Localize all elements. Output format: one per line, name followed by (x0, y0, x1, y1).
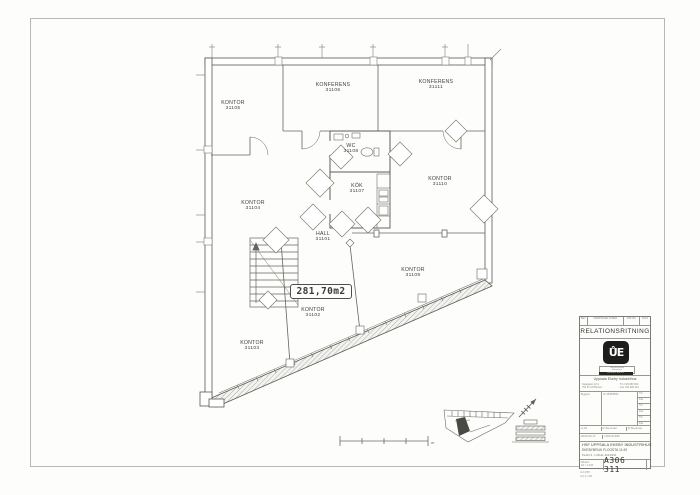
scale-bar: m (340, 436, 435, 446)
date-cell: 2003-05-17 (580, 435, 603, 439)
phone-line: Fax 018-480 601 (620, 386, 639, 389)
sign-cell: R Stenman (627, 427, 650, 431)
number-row: SKALA A3 = 1:100 A306 311 (580, 459, 650, 471)
empty-cell (647, 460, 650, 471)
sign-cell: A-01 (580, 427, 602, 431)
scale-cell: SKALA A3 = 1:100 (580, 460, 604, 471)
handler-cell: I FROLUND (603, 435, 650, 439)
company-name: Uppsala Ekeby Industrihus (580, 377, 650, 381)
rev-col-date: DATUM (624, 317, 640, 325)
north-arrow-icon (519, 399, 536, 417)
wc-kitchen-core (330, 131, 390, 228)
diagonal-glazing (219, 269, 487, 393)
logo-zone: ŮE Uppsala Ekeby Industrihus EKEBYBRUK (580, 338, 650, 375)
scale-value: A3 = 1:100 (581, 464, 602, 467)
grid-mid-cell: Nr 4538/5566 (602, 392, 638, 425)
area-annotation: 281,70m2 (290, 284, 352, 299)
company-block: Uppsala Ekeby Industrihus Salagatan 18 A… (580, 375, 650, 391)
sign-cell: R Stenman (602, 427, 627, 431)
address-line: 753 30 UPPSALA (582, 386, 602, 389)
project-title: HSF UPPSALA EKEBY INDUSTRIHUS (582, 443, 648, 447)
date-row: 2003-05-17 I FROLUND (580, 433, 650, 441)
plot-stamp-line: A3-1:100 (580, 475, 592, 479)
signature-row: A-01 R Stenman R Stenman (580, 425, 650, 433)
grid-left-cell: Bygglov (580, 392, 602, 425)
reference-grid: Bygglov Nr 4538/5566 Tfn Fax Tfn Fax Tfn… (580, 391, 650, 425)
company-address: Salagatan 18 A 753 30 UPPSALA (582, 383, 602, 389)
company-logo-icon: ŮE (603, 341, 629, 364)
plot-stamp: A3-358 A3-1:100 (580, 471, 592, 479)
project-property: EKEBYBRUK FLOGSTA 11:49 (582, 448, 648, 452)
drawing-sheet: m (0, 0, 700, 495)
scale-bar-unit: m (431, 440, 435, 445)
revision-header-row: BET ÄNDRINGEN AVSER DATUM SIGN (580, 317, 650, 325)
rev-col-sign: SIGN (640, 317, 650, 325)
furniture-desks (259, 120, 498, 309)
rev-col-bet: BET (580, 317, 588, 325)
key-plan (444, 410, 514, 442)
drawing-number: A306 311 (604, 460, 647, 471)
interior-partitions (211, 65, 485, 364)
document-type-title: RELATIONSRITNING (580, 325, 650, 338)
company-phone: Tfn 018-480 600 Fax 018-480 601 (620, 383, 639, 389)
grid-ticks (196, 44, 501, 292)
rev-col-change: ÄNDRINGEN AVSER (588, 317, 624, 325)
title-block: BET ÄNDRINGEN AVSER DATUM SIGN RELATIONS… (579, 316, 651, 469)
section-icon (512, 420, 549, 442)
grid-right-col: Tfn Fax Tfn Fax Tfn Fax (638, 392, 650, 425)
